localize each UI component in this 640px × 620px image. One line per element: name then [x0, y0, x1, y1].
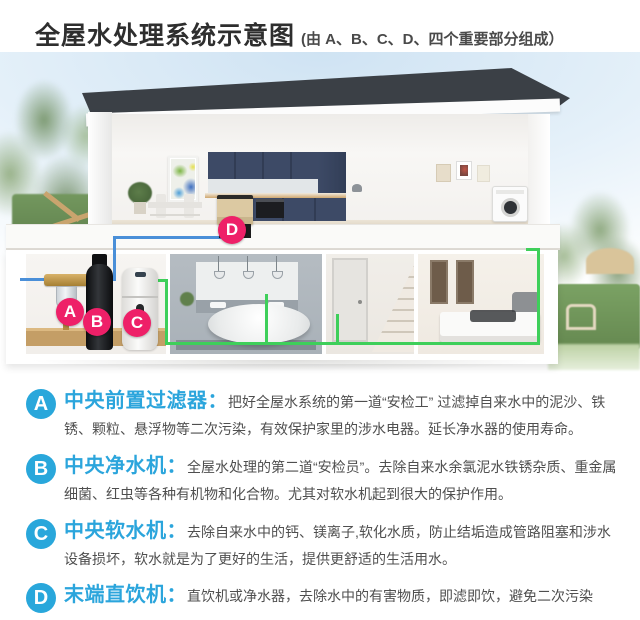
badge-c: C — [26, 519, 56, 549]
page-subtitle: (由 A、B、C、D、四个重要部分组成） — [301, 31, 564, 48]
washing-machine — [492, 186, 528, 222]
green-pipe-right-top — [526, 248, 540, 251]
section-d-body: 直饮机或净水器，去除水中的有害物质，即滤即饮，避免二次污染 — [187, 588, 593, 604]
section-a-heading: 中央前置过滤器： — [64, 390, 228, 412]
floor-slab — [6, 224, 560, 250]
marker-b: B — [83, 308, 111, 336]
small-wall-frame — [477, 165, 490, 182]
softener-display — [135, 272, 146, 277]
section-d: D 末端直饮机：直饮机或净水器，去除水中的有害物质，即滤即饮，避免二次污染 — [26, 582, 618, 610]
section-c: C 中央软水机：去除自来水中的钙、镁离子,软化水质，防止结垢造成管路阻塞和涉水设… — [26, 518, 618, 573]
section-b: B 中央净水机：全屋水处理的第二道“安检员”。去除自来水余氯泥水铁锈杂质、重金属… — [26, 453, 618, 508]
washer-door — [501, 198, 520, 217]
section-b-heading: 中央净水机： — [64, 455, 187, 477]
green-pipe-right-riser — [537, 248, 540, 345]
bed-blanket — [470, 310, 516, 322]
green-pipe-hall-branch — [336, 314, 339, 342]
blue-pipe-to-kitchen — [113, 236, 231, 239]
marker-d: D — [218, 216, 246, 244]
section-a: A 中央前置过滤器：把好全屋水系统的第一道“安检工” 过滤掉自来水中的泥沙、铁锈… — [26, 388, 618, 443]
green-pipe-drop — [165, 279, 168, 345]
pre-filter-icon — [44, 274, 90, 286]
kitchen-kettle — [352, 184, 362, 192]
upper-left-wall — [88, 112, 112, 232]
green-pipe-floor-run — [165, 342, 540, 345]
green-pipe-bath-branch — [265, 294, 268, 342]
softener-seam — [122, 296, 158, 298]
bedroom-art — [456, 260, 474, 304]
badge-d: D — [26, 583, 56, 613]
upper-right-wall — [528, 114, 550, 228]
ground-shadow — [0, 360, 640, 374]
section-d-heading: 末端直饮机： — [64, 584, 187, 606]
bathroom-sink — [210, 302, 226, 308]
water-purifier-tank-icon — [86, 264, 113, 350]
page-title-block: 全屋水处理系统示意图(由 A、B、C、D、四个重要部分组成） — [35, 16, 625, 52]
bedroom-art — [430, 260, 448, 304]
pendant-lamp — [247, 256, 248, 272]
marker-a: A — [56, 298, 84, 326]
page-title: 全屋水处理系统示意图 — [35, 22, 295, 50]
kitchen-upper-cabinets — [208, 152, 318, 179]
washer-panel — [496, 190, 524, 194]
garden-chair — [566, 304, 596, 330]
blue-pipe-riser — [113, 236, 116, 281]
section-c-heading: 中央软水机： — [64, 520, 187, 542]
house-cross-section-illustration: A B C D — [0, 52, 640, 374]
small-wall-frame — [456, 161, 472, 180]
bathroom-plant — [180, 292, 194, 306]
bathtub — [208, 304, 310, 344]
plant-pot — [134, 202, 146, 214]
pendant-lamp — [276, 256, 277, 272]
badge-a: A — [26, 389, 56, 419]
kitchen-backsplash — [208, 179, 318, 194]
pendant-lamp — [218, 256, 219, 272]
infographic-page: 全屋水处理系统示意图(由 A、B、C、D、四个重要部分组成） — [0, 0, 640, 620]
garden-umbrella — [586, 248, 634, 274]
dining-table — [148, 202, 202, 208]
kitchen-oven — [256, 199, 284, 218]
small-wall-frame — [436, 164, 451, 182]
marker-c: C — [123, 309, 151, 337]
badge-b: B — [26, 454, 56, 484]
potted-plant — [128, 182, 152, 204]
